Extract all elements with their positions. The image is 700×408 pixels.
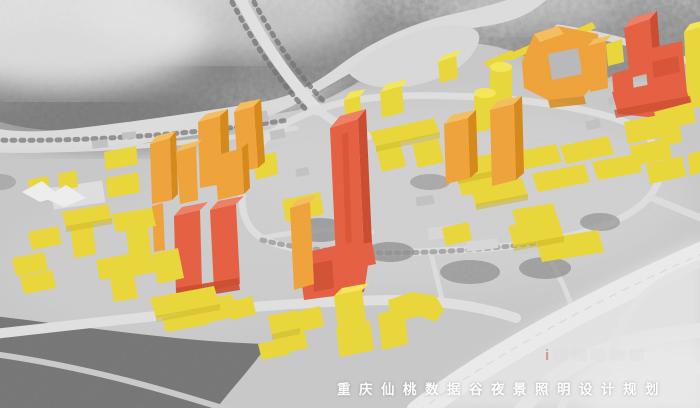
watermark: i	[545, 344, 695, 366]
watermark-glyph-box	[553, 349, 568, 361]
aerial-rendering: 重庆仙桃数据谷夜景照明设计规划 i	[0, 0, 700, 408]
watermark-accent: i	[545, 348, 549, 363]
caption-title: 重庆仙桃数据谷夜景照明设计规划	[337, 378, 667, 398]
watermark-glyph-box	[629, 349, 644, 361]
watermark-glyph-box	[572, 349, 587, 361]
watermark-glyph-box	[610, 349, 625, 361]
watermark-glyph-box	[591, 349, 606, 361]
